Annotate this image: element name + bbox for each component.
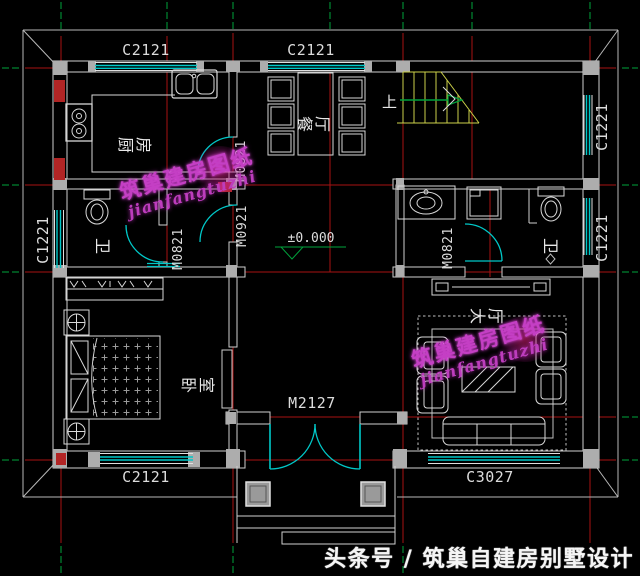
elevation-label: ±0.000 xyxy=(288,231,335,246)
door-label-bath-right: M0821 xyxy=(441,227,456,269)
window-label-right-lower: C1221 xyxy=(593,214,611,262)
coffee-table xyxy=(462,367,515,392)
nightstand-top xyxy=(64,310,89,335)
room-label-hall: 大厅 xyxy=(468,308,505,326)
stairs-direction-arrow xyxy=(400,87,462,111)
door-arc-bath-left xyxy=(126,225,163,262)
entry-porch xyxy=(237,466,395,544)
nightstand-bottom xyxy=(64,419,89,444)
floor-plan-canvas: ±0.000 C2121 C2121 C1221 C1221 C1221 C21… xyxy=(0,0,640,576)
door-arc-kitchen xyxy=(198,137,233,172)
kitchen-counter xyxy=(92,95,230,172)
stove xyxy=(66,104,92,141)
door-label-bath-left: M0821 xyxy=(171,228,186,270)
porch-column-left xyxy=(246,482,270,506)
bath-left-fixtures xyxy=(84,190,110,224)
window-label-bottom-right: C3027 xyxy=(466,468,514,486)
door-arc-entry-right xyxy=(315,424,360,469)
kitchen-sink xyxy=(172,70,217,98)
armchair-right-2 xyxy=(536,369,566,404)
porch-column-right xyxy=(361,482,385,506)
wardrobe xyxy=(66,278,163,300)
wash-basin xyxy=(410,192,442,214)
hall-furniture xyxy=(417,279,566,450)
window-label-top-center: C2121 xyxy=(287,41,335,59)
door-arc-lobby xyxy=(200,205,237,242)
door-label-kitchen: M0821 xyxy=(234,140,249,182)
window-label-right-upper: C1221 xyxy=(593,103,611,151)
bedroom-furniture xyxy=(64,278,163,444)
door-label-entrance: M2127 xyxy=(288,394,336,412)
roof-eave-outline xyxy=(23,30,618,497)
room-label-bedroom: 卧室 xyxy=(179,377,216,395)
dining-set xyxy=(268,73,365,155)
sofa-three-seat xyxy=(443,417,545,445)
room-label-bath-right: 卫 xyxy=(541,238,560,256)
dining-table xyxy=(298,73,333,155)
kitchen-fixtures xyxy=(66,70,230,172)
window-label-left: C1221 xyxy=(34,216,52,264)
bath-right-fixtures xyxy=(398,186,564,264)
carpet-outer xyxy=(418,316,566,450)
washer-cabinet xyxy=(467,187,501,219)
double-bed xyxy=(66,336,160,419)
room-label-kitchen: 厨房 xyxy=(116,137,153,155)
room-label-bath-left: 卫 xyxy=(93,238,112,256)
window-label-bottom-left: C2121 xyxy=(122,468,170,486)
footer-banner: 头条号 / 筑巢自建房别墅设计 xyxy=(324,541,634,573)
carpet-inner xyxy=(432,329,553,438)
door-label-lobby: M0921 xyxy=(235,205,250,247)
stairs xyxy=(397,72,479,123)
tv-cabinet xyxy=(432,279,550,295)
window-label-top-left: C2121 xyxy=(122,41,170,59)
centerline-ticks xyxy=(2,2,638,574)
floor-plan-page: ±0.000 C2121 C2121 C1221 C1221 C1221 C21… xyxy=(0,0,640,576)
bedroom-door-leaf xyxy=(222,350,232,408)
stairs-up-label: 上 xyxy=(382,93,397,111)
room-label-dining: 餐厅 xyxy=(295,116,332,134)
toilet-tank-left xyxy=(84,190,110,199)
door-arc-bath-right xyxy=(465,224,502,261)
door-arc-entry-left xyxy=(270,424,315,469)
armchair-right-1 xyxy=(536,332,566,367)
elevation-marker: ±0.000 xyxy=(275,231,346,259)
